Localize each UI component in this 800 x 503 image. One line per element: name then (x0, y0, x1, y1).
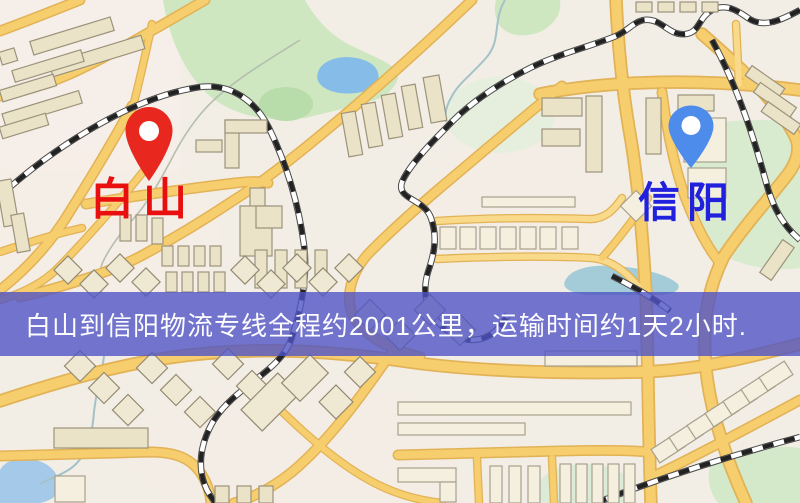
map-artwork (0, 0, 800, 503)
route-info-text: 白山到信阳物流专线全程约2001公里，运输时间约1天2小时. (0, 306, 747, 343)
destination-pin-icon[interactable] (664, 103, 718, 174)
origin-label: 白山 (90, 178, 196, 222)
destination-label: 信阳 (638, 182, 736, 224)
route-info-banner: 白山到信阳物流专线全程约2001公里，运输时间约1天2小时. (0, 292, 800, 356)
map-canvas[interactable]: 白山 信阳 白山到信阳物流专线全程约2001公里，运输时间约1天2小时. (0, 0, 800, 503)
